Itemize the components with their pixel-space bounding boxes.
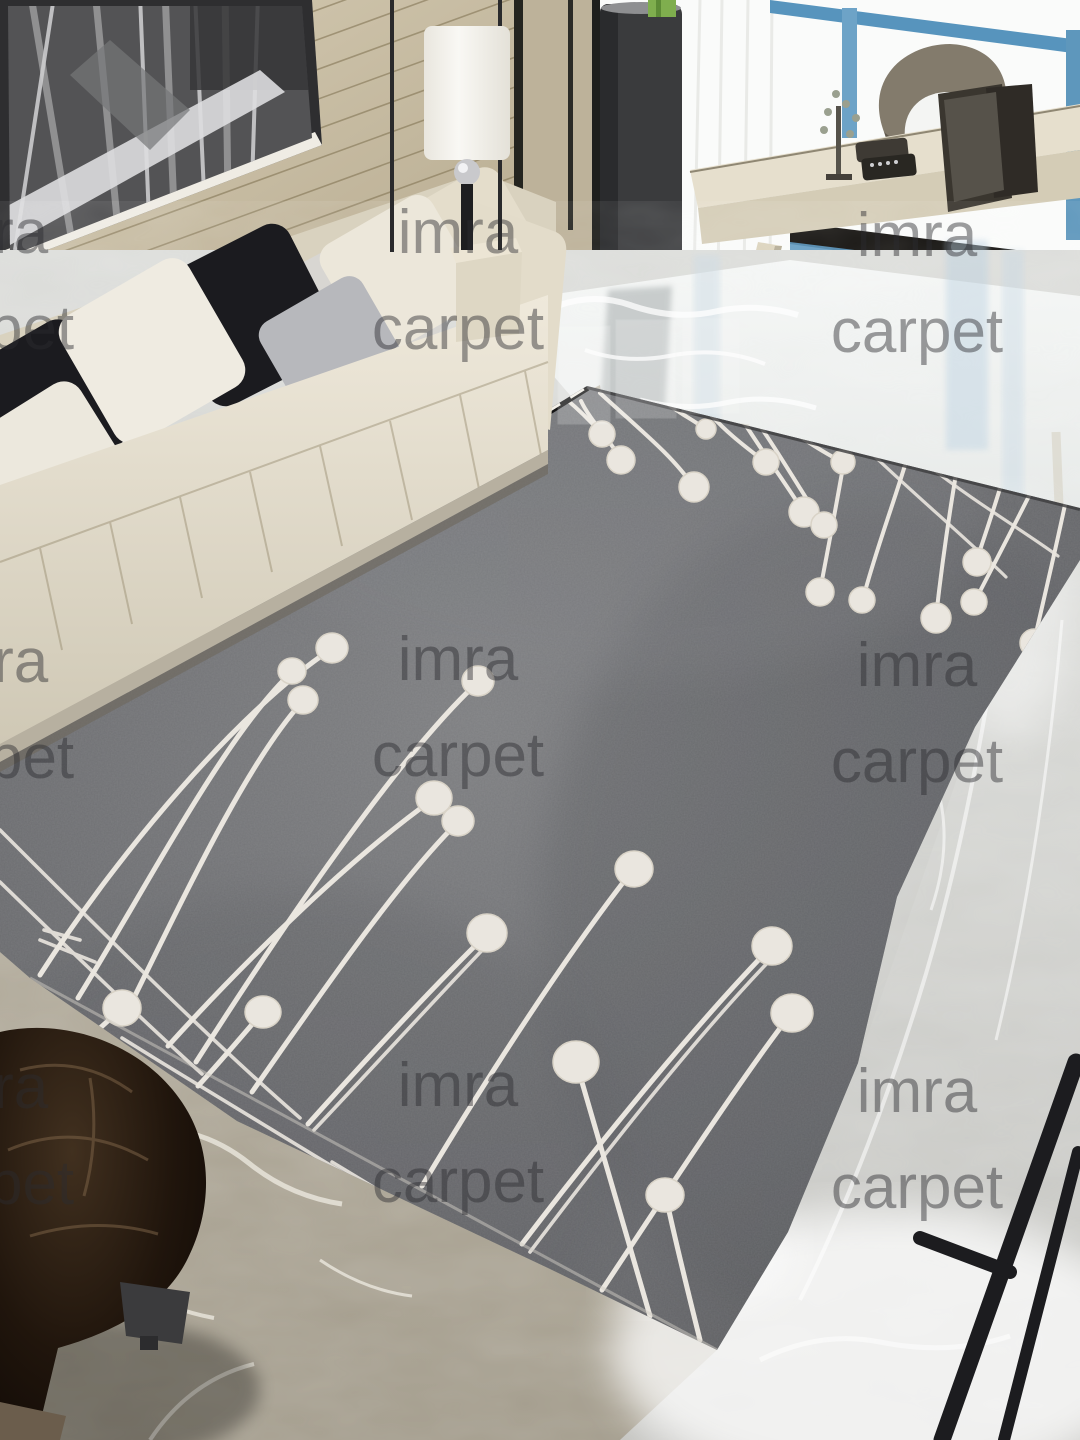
living-room-scene: [0, 0, 1080, 1440]
glass-panels: [558, 318, 740, 424]
product-photo: imracarpetimracarpetimracarpetimracarpet…: [0, 0, 1080, 1440]
speaker-pillar: [600, 0, 682, 292]
lamp-shade: [424, 26, 510, 160]
green-vase: [648, 0, 676, 17]
side-table: [450, 238, 522, 342]
